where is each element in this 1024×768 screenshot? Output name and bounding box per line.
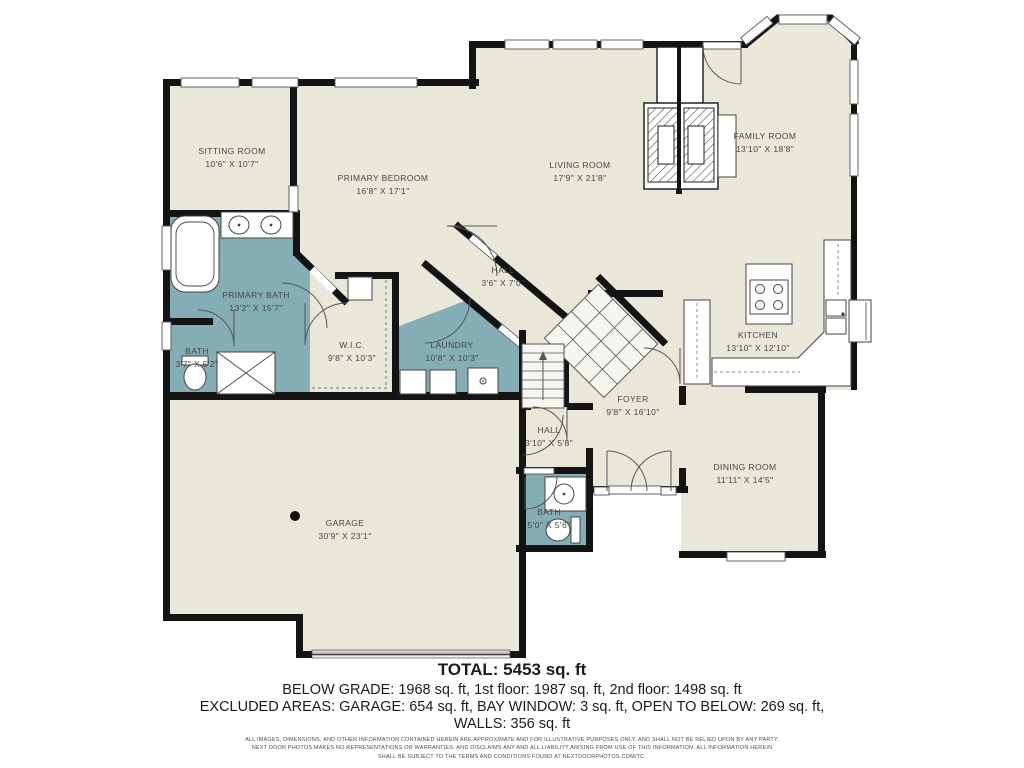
double-vanity bbox=[221, 212, 293, 238]
screenshot-root: SITTING ROOM10'6" X 10'7" PRIMARY BEDROO… bbox=[0, 0, 1024, 768]
room-label-sitting-room: SITTING ROOM10'6" X 10'7" bbox=[198, 145, 265, 171]
room-label-living-room: LIVING ROOM17'9" X 21'8" bbox=[549, 159, 610, 185]
garage-door bbox=[312, 650, 510, 658]
stairs-basement bbox=[522, 344, 564, 408]
room-label-kitchen: KITCHEN13'10" X 12'10" bbox=[726, 329, 790, 355]
room-label-laundry: LAUNDRY10'8" X 10'3" bbox=[425, 339, 478, 365]
room-label-primary-bedroom: PRIMARY BEDROOM16'8" X 17'1" bbox=[338, 172, 429, 198]
disclaimer-line: NEXT DOOR PHOTOS MAKES NO REPRESENTATION… bbox=[0, 744, 1024, 752]
pantry bbox=[684, 300, 710, 384]
area-summary: TOTAL: 5453 sq. ft BELOW GRADE: 1968 sq.… bbox=[0, 660, 1024, 733]
room-label-garage: GARAGE30'9" X 23'1" bbox=[318, 517, 371, 543]
room-label-hall-lower: HALL3'10" X 5'8" bbox=[525, 424, 573, 450]
wall-areas: WALLS: 356 sq. ft bbox=[0, 716, 1024, 732]
kitchen-island-stove bbox=[746, 264, 792, 324]
excluded-areas: EXCLUDED AREAS: GARAGE: 654 sq. ft, BAY … bbox=[0, 699, 1024, 715]
laundry-appliances bbox=[400, 368, 498, 394]
floor-areas: BELOW GRADE: 1968 sq. ft, 1st floor: 198… bbox=[0, 682, 1024, 698]
floor-plan bbox=[0, 0, 1024, 768]
room-label-dining-room: DINING ROOM11'11" X 14'5" bbox=[714, 461, 777, 487]
room-label-family-room: FAMILY ROOM13'10" X 18'8" bbox=[734, 130, 797, 156]
room-label-wic: W.I.C.9'8" X 10'3" bbox=[328, 339, 376, 365]
disclaimer: ALL IMAGES, DIMENSIONS, AND OTHER INFORM… bbox=[0, 736, 1024, 761]
kitchen-sink-bumpout bbox=[849, 300, 871, 342]
bathtub bbox=[171, 216, 219, 292]
room-label-bath-left: BATH3'7" X 5'2" bbox=[176, 345, 219, 371]
room-label-hall-upper: HALL3'6" X 7'0" bbox=[482, 264, 525, 290]
shower bbox=[217, 352, 275, 394]
room-label-bath-center: BATH5'0" X 5'6" bbox=[528, 506, 571, 532]
room-label-foyer: FOYER9'8" X 16'10" bbox=[606, 393, 659, 419]
room-label-primary-bath: PRIMARY BATH13'2" X 15'7" bbox=[222, 289, 290, 315]
disclaimer-line: SHALL BE SUBJECT TO THE TERMS AND CONDIT… bbox=[0, 753, 1024, 761]
garage-column bbox=[290, 511, 300, 521]
disclaimer-line: ALL IMAGES, DIMENSIONS, AND OTHER INFORM… bbox=[0, 736, 1024, 744]
total-area: TOTAL: 5453 sq. ft bbox=[0, 660, 1024, 680]
